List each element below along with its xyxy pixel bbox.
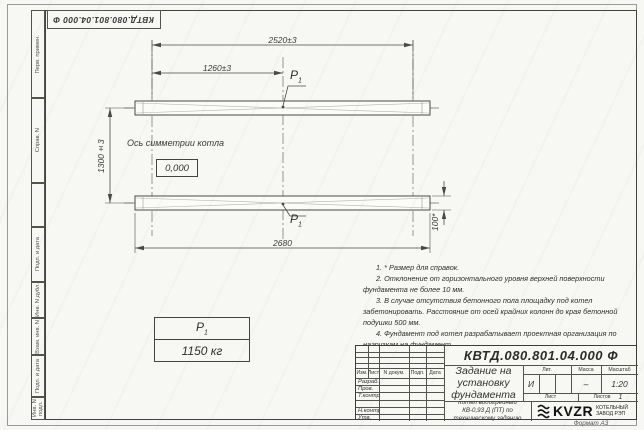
sheets-label: Листов — [594, 394, 611, 400]
technical-notes: 1. * Размер для справок. 2. Отклонение о… — [363, 263, 635, 351]
dim-arrows-100 — [442, 187, 446, 219]
coil-spring-icon — [537, 404, 550, 419]
load-point-label-top: P1 — [290, 68, 302, 84]
row-label-razrab: Разраб. — [356, 378, 379, 385]
lit-value: И — [523, 374, 539, 393]
format-label: Формат А3 — [545, 420, 637, 430]
mass-header: Масса — [571, 365, 601, 374]
load-index: 1 — [204, 330, 208, 337]
elevation-value: 0,000 — [165, 163, 189, 174]
load-table-symbol-cell: P1 — [155, 318, 249, 340]
row-label-empty — [356, 400, 379, 407]
load-point-label-bottom: P1 — [290, 212, 302, 228]
col-header-izm: Изм. — [356, 368, 368, 378]
lit-header: Лит. — [523, 365, 571, 374]
row-label-tkontr: Т.контр. — [356, 392, 379, 400]
elevation-mark: 0,000 — [156, 159, 198, 177]
document-subject: Котел водогрейный КВ-0,93 Д (ПТ) по техн… — [444, 401, 531, 421]
note-1: 1. * Размер для справок. — [363, 263, 635, 274]
dim-label-1260: 1260±3 — [187, 63, 247, 73]
sheets-value: 1 — [618, 394, 622, 401]
note-3: 3. В случае отсутствия бетонного пола пл… — [363, 296, 635, 329]
load-symbol: P — [290, 68, 298, 82]
dim-label-2520: 2520±3 — [252, 35, 313, 45]
dim-line-1300 — [105, 108, 133, 203]
sheets-cell: Листов 1 — [578, 393, 638, 401]
company-logo-text: KVZR — [553, 403, 593, 419]
load-table-value-cell: 1150 кг — [155, 340, 249, 362]
col-header-data: Дата — [426, 368, 444, 378]
dim-label-2680: 2680 — [252, 238, 313, 248]
row-label-nkontr: Н.контр. — [356, 407, 379, 414]
note-2: 2. Отклонение от горизонтального уровня … — [363, 274, 635, 296]
col-header-ndokum: N докум. — [379, 368, 409, 378]
document-designation: КВТД.080.801.04.000 Ф — [444, 346, 638, 365]
dim-label-100: 100* — [430, 206, 442, 238]
symmetry-axis-label: Ось симметрии котла — [127, 138, 224, 148]
scale-header: Масштаб — [601, 365, 638, 374]
row-label-utv: Утв. — [356, 414, 379, 421]
mass-value: – — [571, 374, 601, 393]
leader-dot-top — [282, 106, 285, 109]
load-table: P1 1150 кг — [154, 317, 250, 362]
col-header-list: Лист — [368, 368, 379, 378]
col-header-podp: Подп. — [409, 368, 426, 378]
company-name: КОТЕЛЬНЫЙ ЗАВОД РЭП — [596, 405, 632, 417]
drawing-sheet: Перв. примен. Справ. N Подп. и дата Инв.… — [0, 0, 644, 430]
load-symbol: P — [196, 320, 204, 334]
dim-label-1300: 1300±3 — [96, 127, 109, 185]
company-cell: KVZR КОТЕЛЬНЫЙ ЗАВОД РЭП — [531, 401, 638, 421]
row-label-prov: Пров. — [356, 385, 379, 392]
leader-dot-bottom — [282, 203, 285, 206]
load-value: 1150 кг — [182, 344, 223, 358]
load-symbol: P — [290, 212, 298, 226]
load-index: 1 — [298, 77, 302, 84]
title-block: Изм. Лист N докум. Подп. Дата Разраб. Пр… — [355, 345, 637, 420]
load-index: 1 — [298, 221, 302, 228]
sheet-label: Лист — [523, 393, 578, 401]
document-title: Задание на установку фундамента — [444, 365, 523, 401]
scale-value: 1:20 — [601, 374, 638, 393]
